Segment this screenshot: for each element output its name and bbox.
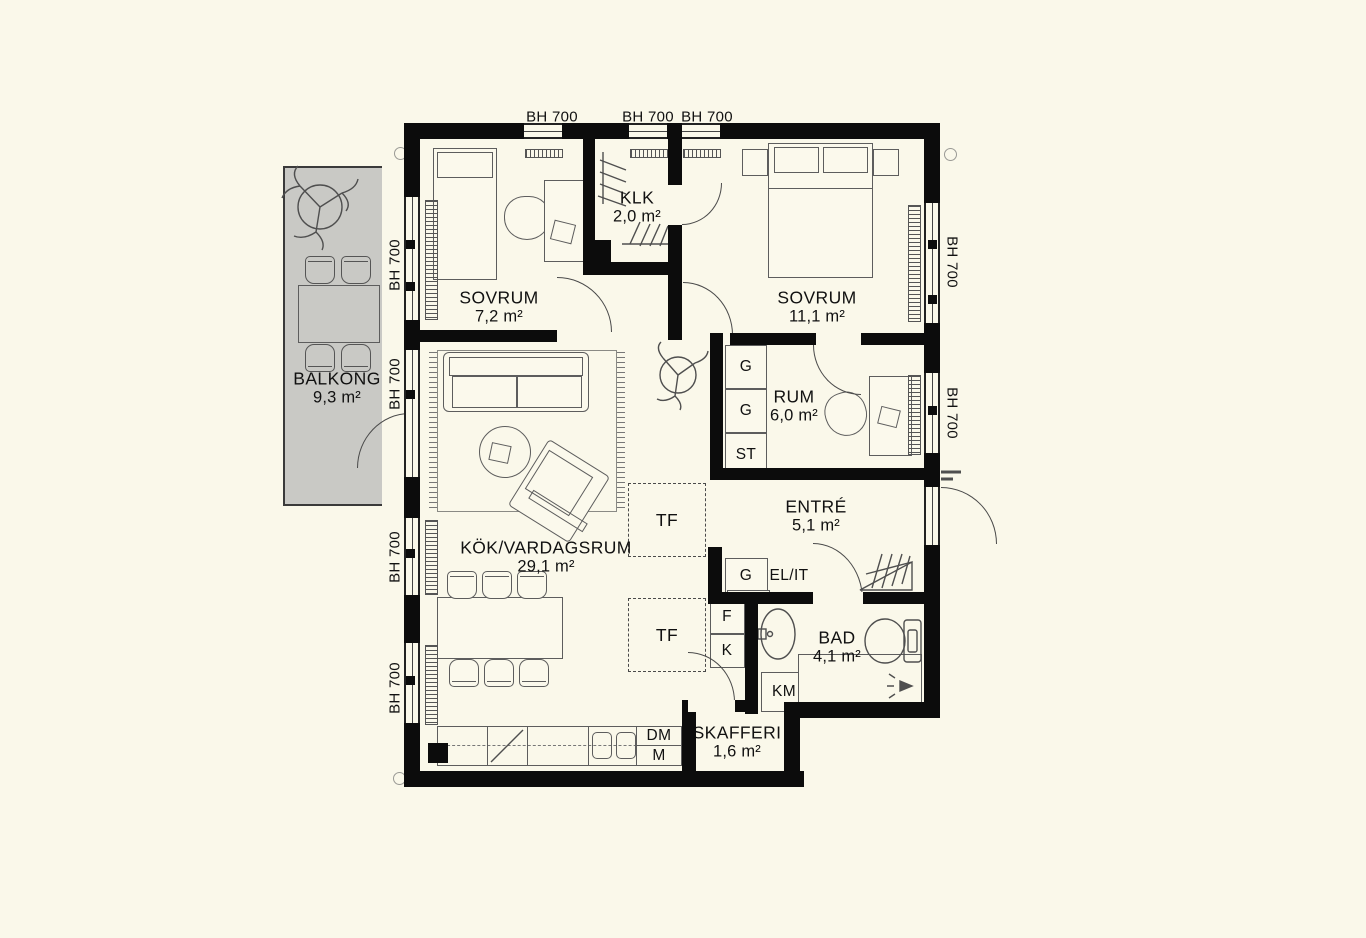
room-label-skafferi: SKAFFERI 1,6 m² [693, 722, 782, 761]
label-m: M [652, 747, 665, 765]
label-tf: TF [656, 510, 678, 530]
room-area: 7,2 m² [459, 308, 538, 327]
vent-grille [525, 149, 563, 158]
label-el-it: EL/IT [769, 567, 808, 585]
label-wardrobe-g: G [740, 567, 752, 585]
label-dm: DM [647, 727, 672, 745]
room-area: 2,0 m² [613, 208, 661, 227]
radiator [425, 200, 438, 320]
wall [710, 333, 723, 480]
washbasin-icon [758, 609, 795, 659]
radiator [425, 520, 438, 595]
window [924, 487, 940, 545]
window-mullion [928, 240, 937, 249]
room-area: 29,1 m² [460, 558, 632, 577]
room-area: 9,3 m² [293, 389, 380, 408]
wall [404, 771, 804, 787]
wall [595, 240, 611, 262]
coat-rack-icon [860, 554, 912, 590]
wall [682, 712, 696, 771]
toilet-icon [865, 619, 921, 663]
plant-icon [657, 342, 708, 410]
room-label-bad: BAD 4,1 m² [813, 627, 861, 666]
room-name: KLK [613, 187, 661, 207]
floor-plan: BALKONG 9,3 m² SOVRUM 7,2 m² KLK 2,0 m² … [0, 0, 1366, 938]
window-mullion [406, 390, 415, 399]
window-mullion [406, 282, 415, 291]
wall [745, 592, 758, 714]
wall [730, 333, 816, 345]
room-label-entre: ENTRÉ 5,1 m² [785, 496, 846, 535]
window [404, 197, 420, 320]
radiator [908, 375, 921, 455]
room-label-kok: KÖK/VARDAGSRUM 29,1 m² [460, 537, 632, 576]
label-wardrobe-g: G [740, 402, 752, 420]
window-mullion [406, 240, 415, 249]
room-name: ENTRÉ [785, 496, 846, 516]
label-tf: TF [656, 625, 678, 645]
door-opening [813, 592, 863, 604]
room-name: RUM [770, 386, 818, 406]
window-head-label: BH 700 [943, 236, 960, 288]
wall [404, 123, 940, 139]
window-head-label: BH 700 [386, 358, 403, 410]
window [404, 350, 420, 477]
room-name: BALKONG [293, 368, 380, 388]
room-label-klk: KLK 2,0 m² [613, 187, 661, 226]
window-head-label: BH 700 [386, 662, 403, 714]
window [924, 203, 940, 323]
decor-layer [0, 0, 1366, 938]
window [524, 123, 562, 139]
wall [861, 333, 924, 345]
wall [583, 139, 595, 262]
room-area: 4,1 m² [813, 648, 861, 667]
room-name: KÖK/VARDAGSRUM [460, 537, 632, 557]
label-f: F [722, 608, 732, 626]
radiator [425, 645, 438, 725]
wall [668, 139, 682, 185]
room-name: SOVRUM [777, 287, 856, 307]
window-head-label: BH 700 [386, 531, 403, 583]
room-label-balkong: BALKONG 9,3 m² [293, 368, 380, 407]
window-head-label: BH 700 [943, 387, 960, 439]
room-name: BAD [813, 627, 861, 647]
label-wardrobe-g: G [740, 358, 752, 376]
wall [710, 468, 924, 480]
room-area: 1,6 m² [693, 743, 782, 762]
stove-icon [491, 730, 523, 762]
window [629, 123, 667, 139]
window [682, 123, 720, 139]
reference-circle [944, 148, 957, 161]
wall [924, 545, 940, 718]
shower-head-icon [887, 674, 912, 698]
room-area: 5,1 m² [785, 517, 846, 536]
entrance-handle-icon [941, 472, 961, 479]
vent-grille [630, 149, 668, 158]
label-km: KM [772, 683, 796, 701]
room-label-rum: RUM 6,0 m² [770, 386, 818, 425]
window-mullion [406, 676, 415, 685]
window-head-label: BH 700 [386, 239, 403, 291]
window-mullion [928, 406, 937, 415]
wall [796, 702, 940, 718]
radiator [908, 205, 921, 322]
window-mullion [928, 295, 937, 304]
door-opening [688, 700, 735, 712]
window-mullion [406, 549, 415, 558]
room-label-sovrum2: SOVRUM 11,1 m² [777, 287, 856, 326]
wall [404, 330, 557, 342]
vent-grille [683, 149, 721, 158]
room-area: 6,0 m² [770, 407, 818, 426]
wall [428, 743, 448, 763]
plant-icon [282, 166, 358, 250]
label-st: ST [736, 446, 757, 464]
label-k: K [722, 642, 733, 660]
wall [668, 225, 682, 340]
room-name: SKAFFERI [693, 722, 782, 742]
room-area: 11,1 m² [777, 308, 856, 327]
room-label-sovrum1: SOVRUM 7,2 m² [459, 287, 538, 326]
room-name: SOVRUM [459, 287, 538, 307]
